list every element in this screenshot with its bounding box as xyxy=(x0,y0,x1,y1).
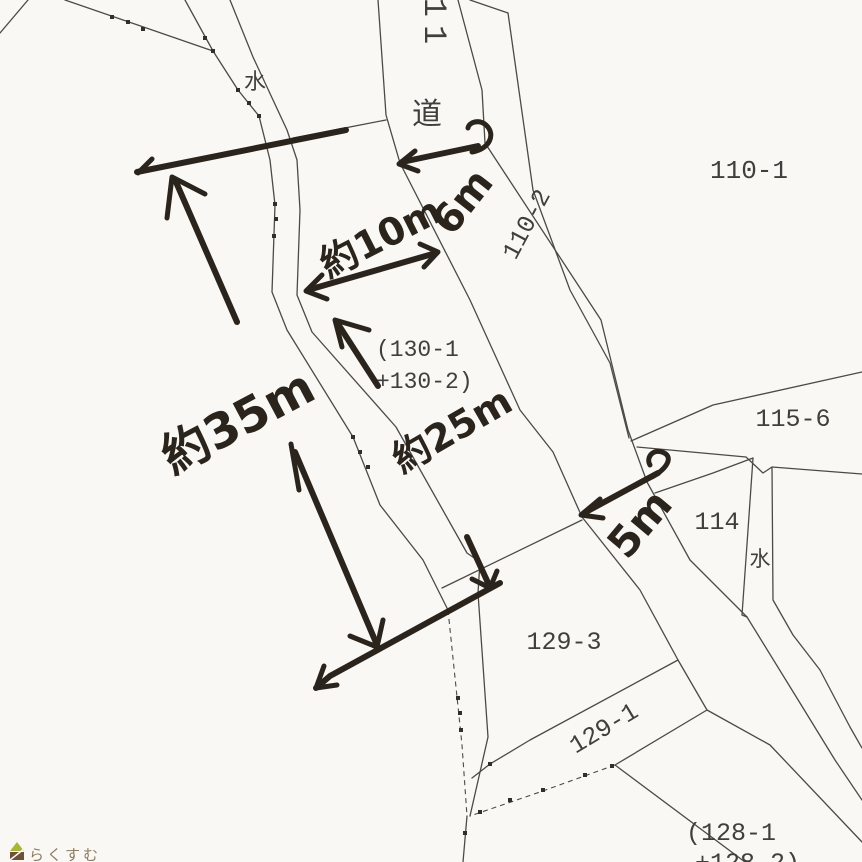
corner-line xyxy=(0,0,28,33)
survey-point xyxy=(458,711,462,715)
parcel-110-1-label: 110-1 xyxy=(710,156,788,186)
dim-35m-shaft xyxy=(295,452,377,645)
north-reference-bar xyxy=(137,130,346,172)
parcel-115-6-label: 115-6 xyxy=(755,405,830,434)
road-number-partial-label: 11 xyxy=(415,0,452,52)
water-strip-right-edge xyxy=(772,467,862,748)
survey-point xyxy=(456,696,460,700)
water-label-upper: 水 xyxy=(244,70,266,96)
dim-5m-left-head xyxy=(581,499,603,518)
survey-point xyxy=(459,728,463,732)
survey-point xyxy=(247,101,251,105)
road-label: 道 xyxy=(412,98,442,134)
survey-point xyxy=(541,788,545,792)
parcel-129-1-north-boundary xyxy=(472,660,678,778)
waterway-left-bank-dotted xyxy=(448,610,467,816)
survey-point xyxy=(272,234,276,238)
parcel-129-3-label: 129-3 xyxy=(526,628,601,657)
parcel-129-3-north-boundary xyxy=(442,520,582,588)
parcel-128-label-line1: (128-1 xyxy=(686,819,776,848)
parcel-110-2-top-segment xyxy=(470,0,508,13)
parcel-110-2-label: 110-2 xyxy=(497,185,558,265)
handwritten-annotations: 約35m 約10m 6m 約25m 5m xyxy=(137,122,682,688)
survey-point xyxy=(141,27,145,31)
survey-point xyxy=(203,36,207,40)
waterway-bottom-tail xyxy=(463,816,467,862)
survey-point xyxy=(274,217,278,221)
house-icon-roof xyxy=(10,842,24,851)
survey-point xyxy=(508,798,512,802)
parcel-114-label: 114 xyxy=(694,508,739,537)
survey-point xyxy=(583,773,587,777)
survey-point xyxy=(236,88,240,92)
dim-5m-label: 5m xyxy=(597,480,681,567)
watermark-text: らくすむ xyxy=(29,846,101,862)
parcel-115-6-south-boundary xyxy=(637,447,862,474)
water-strip-left-edge xyxy=(742,458,753,617)
road-right-edge-lower xyxy=(747,617,862,800)
waterway-upper-line-a xyxy=(65,0,213,51)
survey-point xyxy=(211,49,215,53)
survey-point xyxy=(273,202,277,206)
parcel-128-label-line2: +128-2) xyxy=(695,849,800,862)
survey-point xyxy=(126,20,130,24)
up-arrow-shaft xyxy=(176,182,237,322)
water-label-lower: 水 xyxy=(750,548,771,573)
dim-25m-upper-shaft xyxy=(338,324,378,386)
parcel-130-label-line1: (130-1 xyxy=(376,337,459,363)
south-reference-bar xyxy=(316,583,500,688)
survey-point xyxy=(463,831,467,835)
survey-point xyxy=(110,15,114,19)
cadastral-map: 11 道 水 110-1 110-2 115-6 114 水 (130-1 +1… xyxy=(0,0,862,862)
survey-point xyxy=(610,764,614,768)
survey-point xyxy=(366,465,370,469)
survey-point xyxy=(488,762,492,766)
survey-point xyxy=(478,810,482,814)
survey-point xyxy=(257,114,261,118)
parcel-129-1-label: 129-1 xyxy=(565,697,644,760)
house-icon xyxy=(10,842,24,860)
survey-point xyxy=(351,435,355,439)
survey-point xyxy=(358,450,362,454)
parcel-130-label-line2: +130-2) xyxy=(376,369,473,395)
watermark-logo: らくすむ xyxy=(10,842,101,862)
